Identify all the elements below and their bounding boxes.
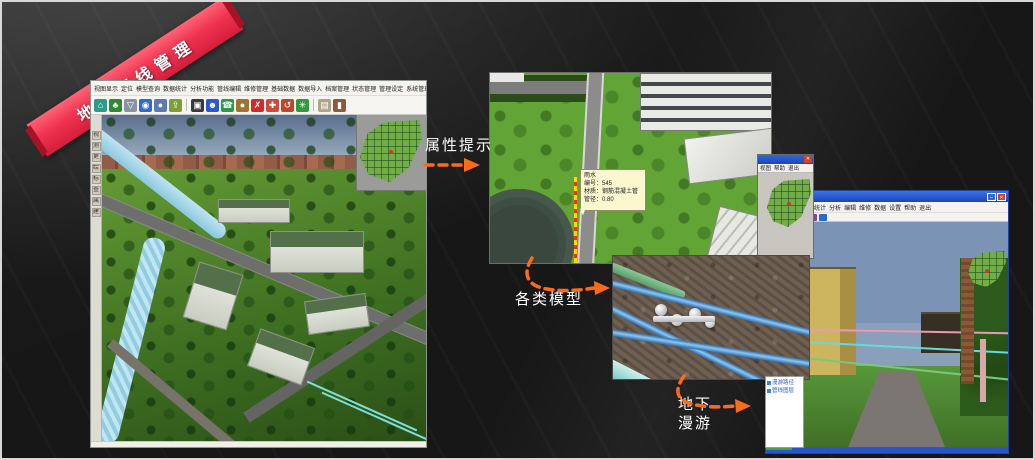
export-icon[interactable]: ⇪ (169, 99, 182, 112)
main-statusbar (91, 441, 426, 447)
toolbar-separator (186, 99, 187, 111)
side-button-视[interactable]: 视 (92, 131, 101, 140)
camera-icon[interactable]: ▣ (191, 99, 204, 112)
menu-item-分析功能[interactable]: 分析功能 (190, 84, 214, 93)
sphere-icon[interactable]: ● (154, 99, 167, 112)
callout-model-types: 各类模型 (515, 288, 583, 309)
side-button-绘[interactable]: 绘 (92, 164, 101, 173)
overview-fan-map (360, 120, 422, 182)
side-button-属[interactable]: 属 (92, 197, 101, 206)
browse-menu-item-分析[interactable]: 分析 (829, 203, 841, 212)
aerial-top-road (490, 81, 600, 94)
arrowhead (735, 399, 751, 413)
scene-building (218, 199, 290, 223)
menu-item-基础数据[interactable]: 基础数据 (271, 84, 295, 93)
globe-icon[interactable]: ◉ (139, 99, 152, 112)
menu-item-视图显示[interactable]: 视图显示 (94, 84, 118, 93)
browse-toolbar-icon[interactable] (819, 214, 827, 221)
close-button[interactable]: ✕ (804, 156, 812, 163)
browse-menu-item-数据[interactable]: 数据 (874, 203, 886, 212)
overview-minimap-panel[interactable] (356, 115, 426, 191)
menu-item-模型查询[interactable]: 模型查询 (136, 84, 160, 93)
tooltip-line: 雨水 (584, 172, 642, 180)
pipe-cyan-flat (612, 349, 709, 380)
side-button-测[interactable]: 测 (92, 142, 101, 151)
map-marker (985, 269, 989, 273)
document-icon[interactable]: ▤ (318, 99, 331, 112)
toolbar-separator (313, 99, 314, 111)
tree-icon[interactable]: ♣ (109, 99, 122, 112)
screenshot-pipe-models[interactable] (612, 255, 810, 380)
side-button-标[interactable]: 标 (92, 175, 101, 184)
close-button[interactable]: ✕ (997, 193, 1006, 201)
arrowhead (594, 281, 610, 295)
arrowhead (464, 158, 480, 172)
main-app-window: 视图显示定位模型查询数据统计分析功能管线编辑维修管理基础数据数据导入档案管理状态… (90, 80, 427, 448)
browse-menu-item-设置[interactable]: 设置 (889, 203, 901, 212)
screenshot-attribute-tip[interactable]: 雨水编号：545材质：钢筋混凝土管管径：0.80 (489, 72, 772, 264)
side-button-建[interactable]: 建 (92, 208, 101, 217)
tooltip-line: 编号：545 (584, 180, 642, 188)
mini-menu-item-退出[interactable]: 退出 (788, 164, 799, 172)
street-pink-pipe (980, 339, 986, 402)
layer-checkbox-icon[interactable] (767, 381, 771, 385)
mini-titlebar: ✕ (758, 155, 813, 164)
presentation-slide: 地下管线管理 视图显示定位模型查询数据统计分析功能管线编辑维修管理基础数据数据导… (0, 0, 1035, 460)
phone-icon[interactable]: ☎ (221, 99, 234, 112)
layer-item[interactable]: 漫游路径 (767, 379, 802, 387)
tooltip-line: 材质：钢筋混凝土管 (584, 188, 642, 196)
menu-item-数据统计[interactable]: 数据统计 (163, 84, 187, 93)
flower-icon[interactable]: ✳ (296, 99, 309, 112)
mini-query-window: ✕ 视图帮助退出 (757, 154, 814, 259)
selected-pipe-highlight (574, 177, 577, 263)
layer-label: 管线图层 (772, 387, 794, 395)
menu-item-档案管理[interactable]: 档案管理 (325, 84, 349, 93)
mini-menu-item-帮助[interactable]: 帮助 (774, 164, 785, 172)
menu-item-定位[interactable]: 定位 (121, 84, 133, 93)
browse-menu-item-编辑[interactable]: 编辑 (844, 203, 856, 212)
menu-item-维修管理[interactable]: 维修管理 (244, 84, 268, 93)
aerial-corner-building (490, 73, 524, 82)
pipe-blue (612, 278, 810, 339)
minimize-button[interactable]: – (987, 193, 996, 201)
pipe-blue (612, 328, 810, 369)
callout-attribute-tip: 属性提示 (425, 134, 493, 155)
compass-icon[interactable]: ✚ (266, 99, 279, 112)
attribute-tooltip: 雨水编号：545材质：钢筋混凝土管管径：0.80 (580, 169, 646, 211)
side-tool-panel: 视测更绘标查属建 (91, 115, 102, 441)
door-icon[interactable]: ▮ (333, 99, 346, 112)
tooltip-line: 管径：0.80 (584, 196, 642, 204)
menu-item-数据导入[interactable]: 数据导入 (298, 84, 322, 93)
browse-menu-item-退出[interactable]: 退出 (919, 203, 931, 212)
layers-panel[interactable]: 漫游路径管线图层 (765, 376, 804, 448)
ball-icon[interactable]: ● (236, 99, 249, 112)
view-icon[interactable]: ▽ (124, 99, 137, 112)
valve (655, 304, 667, 316)
scene-building (270, 231, 364, 273)
browse-menu-item-统计[interactable]: 统计 (814, 203, 826, 212)
main-toolbar: ⌂♣▽◉●⇪▣☻☎●✗✚↺✳▤▮ (91, 95, 426, 115)
callout-underground-roam: 地下 漫游 (678, 396, 712, 434)
mini-menubar: 视图帮助退出 (758, 164, 813, 173)
browse-menu-item-帮助[interactable]: 帮助 (904, 203, 916, 212)
side-button-更[interactable]: 更 (92, 153, 101, 162)
main-menubar: 视图显示定位模型查询数据统计分析功能管线编辑维修管理基础数据数据导入档案管理状态… (91, 81, 426, 95)
map-marker (389, 150, 393, 154)
3d-scene-viewport[interactable] (102, 115, 426, 441)
layer-item[interactable]: 管线图层 (767, 387, 802, 395)
menu-item-状态管理[interactable]: 状态管理 (352, 84, 376, 93)
menu-item-管理设定[interactable]: 管理设定 (379, 84, 403, 93)
browse-menu-item-维修[interactable]: 维修 (859, 203, 871, 212)
map-marker (787, 202, 791, 206)
valve-manifold (653, 316, 715, 322)
menu-item-管线编辑[interactable]: 管线编辑 (217, 84, 241, 93)
person-icon[interactable]: ☻ (206, 99, 219, 112)
layer-checkbox-icon[interactable] (767, 389, 771, 393)
aerial-building (640, 73, 772, 131)
side-button-查[interactable]: 查 (92, 186, 101, 195)
menu-item-系统管理[interactable]: 系统管理 (406, 84, 426, 93)
home-icon[interactable]: ⌂ (94, 99, 107, 112)
layer-label: 漫游路径 (772, 379, 794, 387)
main-window-body: 视测更绘标查属建 (91, 115, 426, 441)
mini-fan-map (767, 179, 811, 227)
undo-icon[interactable]: ↺ (281, 99, 294, 112)
close-x-icon[interactable]: ✗ (251, 99, 264, 112)
mini-menu-item-视图[interactable]: 视图 (760, 164, 771, 172)
